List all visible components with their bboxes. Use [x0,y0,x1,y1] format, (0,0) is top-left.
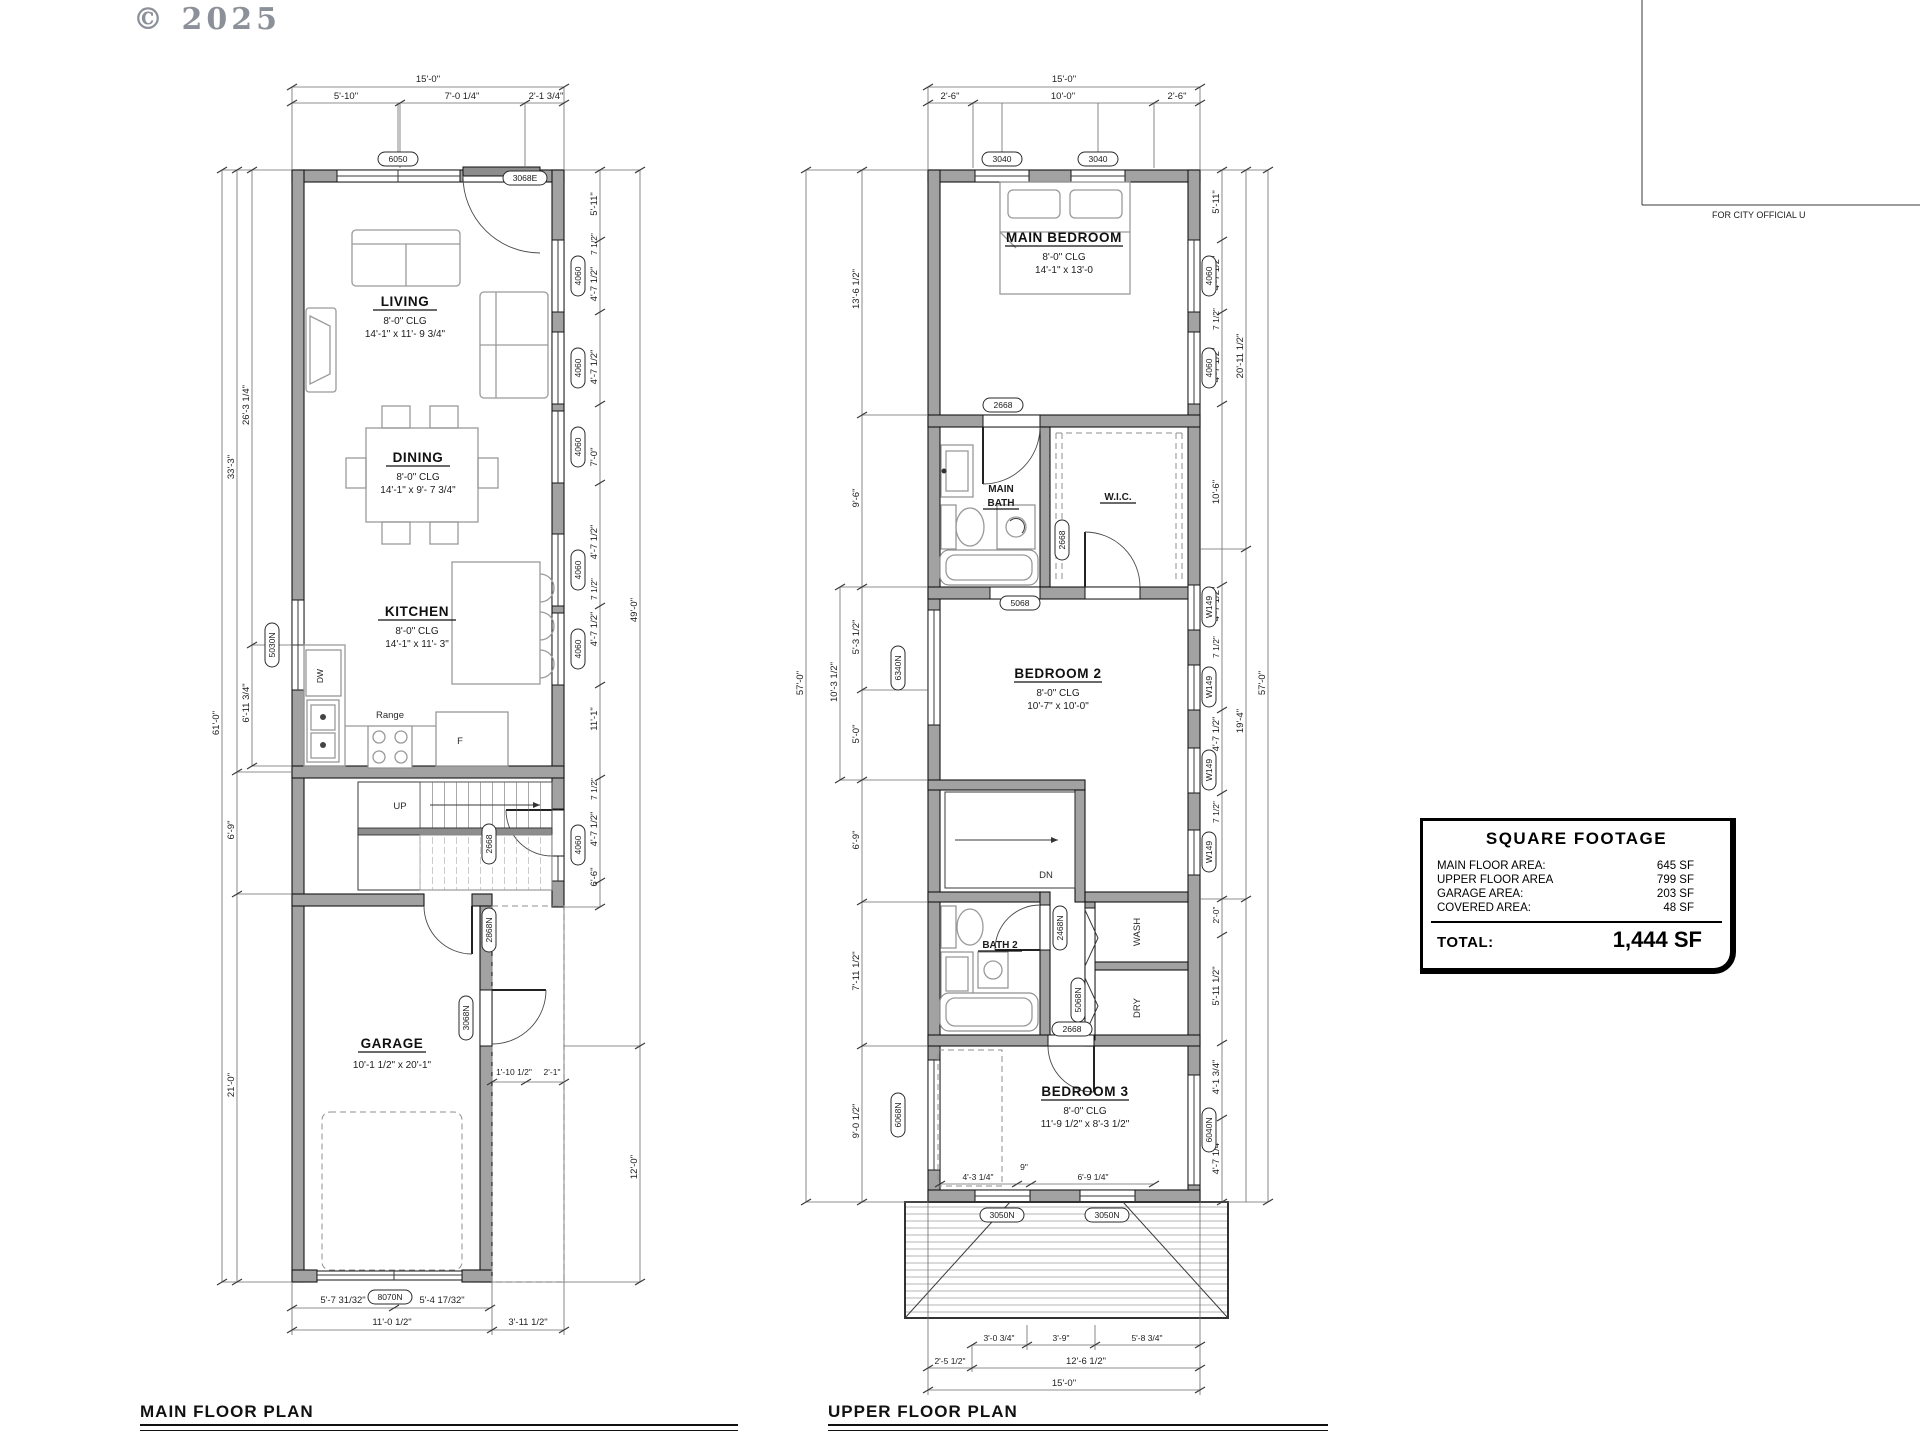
tag-6040N: 6040N [1202,1108,1216,1152]
sqft-label: UPPER FLOOR AREA [1437,873,1553,887]
covered-porch [492,906,564,1282]
svg-text:11'-0 1/2": 11'-0 1/2" [372,1317,411,1328]
dining-label: DINING 8'-0" CLG 14'-1" x 9'- 7 3/4" [380,450,456,496]
svg-text:4'-7 1/2": 4'-7 1/2" [589,350,600,385]
svg-text:9": 9" [1020,1162,1028,1172]
car-outline [322,1112,462,1270]
svg-text:5'-7 31/32": 5'-7 31/32" [320,1295,365,1306]
garage-entry-door [424,906,472,954]
garage-overhead-door [317,1271,462,1280]
svg-text:13'-6 1/2": 13'-6 1/2" [851,269,862,309]
sqft-total-row: TOTAL: 1,444 SF [1431,921,1722,953]
tag-3050N-2: 3050N [1085,1208,1129,1222]
svg-text:5'-11": 5'-11" [589,192,600,216]
svg-text:W149: W149 [1204,676,1214,698]
sqft-label: MAIN FLOOR AREA: [1437,859,1546,873]
tag-5068: 5068 [1000,596,1040,610]
svg-text:5030N: 5030N [267,632,277,657]
plan-drawing: FOR CITY OFFICIAL U [0,0,1920,1440]
svg-text:8'-0" CLG: 8'-0" CLG [395,626,438,637]
svg-text:12'-0": 12'-0" [629,1155,640,1179]
svg-text:6340N: 6340N [893,655,903,680]
tag-4060-3: 4060 [571,427,585,467]
svg-text:2868N: 2868N [484,917,494,942]
svg-text:BEDROOM 3: BEDROOM 3 [1041,1084,1128,1099]
svg-text:3'-11 1/2": 3'-11 1/2" [508,1317,547,1328]
svg-text:11'-9 1/2" x 8'-3 1/2": 11'-9 1/2" x 8'-3 1/2" [1041,1119,1130,1130]
svg-text:W149: W149 [1204,596,1214,618]
floor-plan-sheet: © 2025 FOR CITY OFFICIAL U [0,0,1920,1440]
tag-3050N-1: 3050N [980,1208,1024,1222]
kitchen-fixtures [304,562,554,768]
svg-text:7'-0 1/4": 7'-0 1/4" [445,91,480,102]
svg-text:7 1/2": 7 1/2" [1211,636,1221,658]
svg-text:DINING: DINING [393,450,444,465]
sqft-row-upper: UPPER FLOOR AREA 799 SF [1437,873,1716,887]
svg-text:2'-6": 2'-6" [941,91,960,102]
svg-text:4060: 4060 [573,266,583,285]
stairs-up [358,782,552,890]
svg-text:8'-0" CLG: 8'-0" CLG [1036,688,1079,699]
svg-text:2'-1 3/4": 2'-1 3/4" [529,91,564,102]
svg-text:2'-5 1/2": 2'-5 1/2" [934,1356,965,1366]
wic-label: W.I.C. [1100,492,1136,503]
svg-text:5'-11 1/2": 5'-11 1/2" [1211,966,1222,1005]
svg-text:MAIN: MAIN [988,484,1014,495]
svg-text:6'-6": 6'-6" [589,868,600,887]
corner-note: FOR CITY OFFICIAL U [1712,210,1806,220]
upper-dims-top: 15'-0" 2'-6" 10'-0" 2'-6" [923,74,1205,170]
main-bath-fixtures [940,445,1038,585]
svg-text:4'-3 1/4": 4'-3 1/4" [962,1172,993,1182]
bath2-fixtures [940,906,1038,1031]
tag-4060-1: 4060 [571,256,585,296]
svg-text:4060: 4060 [1204,358,1214,377]
tag-6050: 6050 [378,152,418,166]
sqft-value: 645 SF [1657,859,1716,873]
svg-text:10'-3 1/2": 10'-3 1/2" [829,662,840,702]
svg-text:5'-10": 5'-10" [334,91,358,102]
dry-label: DRY [1132,997,1143,1018]
living-furniture [306,230,548,398]
svg-text:14'-1" x 13'-0: 14'-1" x 13'-0 [1035,265,1093,276]
tag-2868N: 2868N [482,908,496,952]
svg-text:3040: 3040 [993,154,1012,164]
svg-text:4060: 4060 [573,437,583,456]
svg-text:4060: 4060 [573,639,583,658]
tag-3040-1: 3040 [982,152,1022,166]
svg-text:14'-1" x 9'- 7 3/4": 14'-1" x 9'- 7 3/4" [380,485,456,496]
tag-6068N: 6068N [891,1093,905,1137]
stairs-down [945,792,1075,888]
upper-plan-title: UPPER FLOOR PLAN [828,1402,1018,1422]
window-6050 [337,170,460,182]
svg-text:3'-0 3/4": 3'-0 3/4" [983,1333,1014,1343]
svg-text:10'-0": 10'-0" [1051,91,1075,102]
dw-label: DW [315,669,325,683]
deck [905,1202,1228,1318]
svg-text:57'-0": 57'-0" [1257,671,1268,695]
wic-door [1085,532,1140,599]
title-block-corner: FOR CITY OFFICIAL U [1642,0,1920,220]
main-title-rule [140,1424,738,1426]
tag-4060-6: 4060 [571,825,585,865]
svg-text:19'-4": 19'-4" [1235,709,1246,733]
svg-text:6'-9": 6'-9" [851,831,862,850]
svg-text:5'-3 1/2": 5'-3 1/2" [851,620,862,655]
svg-text:W149: W149 [1204,841,1214,863]
main-floor-plan: DW Range F UP LIVING 8'-0" CLG 14'-1" x … [211,74,645,1335]
upper-title-rule [828,1424,1328,1426]
svg-text:7 1/2": 7 1/2" [589,233,599,255]
svg-text:4'-7 1/2": 4'-7 1/2" [589,612,600,647]
svg-text:8070N: 8070N [377,1292,402,1302]
svg-text:7 1/2": 7 1/2" [589,778,599,800]
svg-text:4060: 4060 [1204,266,1214,285]
svg-text:9'-0 1/2": 9'-0 1/2" [851,1104,862,1139]
svg-text:8'-0" CLG: 8'-0" CLG [1042,252,1085,263]
wash-label: WASH [1132,918,1143,946]
window-6340N [928,610,940,725]
window-5030N [292,600,304,690]
svg-text:5'-11": 5'-11" [1211,190,1222,214]
tag-2668: 2668 [482,824,496,864]
tag-4060-5: 4060 [571,629,585,669]
sqft-row-covered: COVERED AREA: 48 SF [1437,901,1716,915]
svg-text:3050N: 3050N [989,1210,1014,1220]
svg-text:BATH 2: BATH 2 [982,940,1018,951]
svg-text:61'-0": 61'-0" [211,711,222,735]
svg-text:5068N: 5068N [1073,987,1083,1012]
bed3-closet [938,1050,1002,1186]
main-title-rule2 [140,1430,738,1431]
svg-text:3068E: 3068E [513,173,538,183]
tag-6340N: 6340N [891,646,905,690]
svg-text:2'-6": 2'-6" [1168,91,1187,102]
tag-W149-4: W149 [1202,832,1216,872]
svg-text:LIVING: LIVING [381,294,430,309]
svg-text:W149: W149 [1204,759,1214,781]
upper-dims-left: 13'-6 1/2" 9'-6" 5'-3 1/2" 5'-0" 10'-3 1… [795,167,928,1205]
main-dims-top: 15'-0" 5'-10" 7'-0 1/4" 2'-1 3/4" [287,74,569,170]
up-label: UP [393,801,406,812]
svg-text:4'-7 1/2": 4'-7 1/2" [589,525,600,560]
svg-text:15'-0": 15'-0" [1052,74,1076,85]
tag-4060-2: 4060 [571,348,585,388]
svg-text:57'-0": 57'-0" [795,671,806,695]
tag-wic-2668: 2668 [1055,520,1069,560]
svg-text:15'-0": 15'-0" [1052,1378,1076,1389]
svg-text:2668: 2668 [1057,530,1067,549]
living-label: LIVING 8'-0" CLG 14'-1" x 11'- 9 3/4" [365,294,446,340]
svg-text:6'-9": 6'-9" [226,821,237,840]
svg-text:4060: 4060 [573,358,583,377]
svg-text:4060: 4060 [573,560,583,579]
svg-text:KITCHEN: KITCHEN [385,604,449,619]
sqft-total-label: TOTAL: [1437,934,1494,951]
main-bath-label: MAIN BATH [983,484,1019,509]
svg-text:3050N: 3050N [1094,1210,1119,1220]
svg-text:BATH: BATH [987,498,1014,509]
tag-4060-4: 4060 [571,550,585,590]
fridge-label: F [457,736,463,747]
tag-3068N: 3068N [459,996,473,1040]
tag-3068E: 3068E [503,171,547,185]
svg-text:8'-0" CLG: 8'-0" CLG [383,316,426,327]
svg-text:3068N: 3068N [461,1005,471,1030]
svg-text:MAIN BEDROOM: MAIN BEDROOM [1006,230,1122,245]
svg-text:4060: 4060 [573,835,583,854]
svg-text:10'-6": 10'-6" [1211,480,1222,504]
bedroom2-label: BEDROOM 2 8'-0" CLG 10'-7" x 10'-0" [1014,666,1102,712]
svg-text:9'-6": 9'-6" [851,489,862,508]
main-plan-title: MAIN FLOOR PLAN [140,1402,314,1422]
svg-text:7 1/2": 7 1/2" [1211,308,1221,330]
sqft-row-garage: GARAGE AREA: 203 SF [1437,887,1716,901]
svg-text:1'-10 1/2": 1'-10 1/2" [496,1067,532,1077]
svg-text:7 1/2": 7 1/2" [1211,801,1221,823]
svg-text:7'-0": 7'-0" [589,448,600,467]
bedroom3-label: BEDROOM 3 8'-0" CLG 11'-9 1/2" x 8'-3 1/… [1041,1084,1130,1130]
tag-8070N: 8070N [368,1290,412,1304]
bath2-label: BATH 2 [978,940,1022,951]
svg-text:BEDROOM 2: BEDROOM 2 [1014,666,1101,681]
svg-text:8'-0" CLG: 8'-0" CLG [396,472,439,483]
upper-floor-plan: DN WASH DRY [795,74,1273,1395]
svg-text:6040N: 6040N [1204,1117,1214,1142]
sqft-value: 203 SF [1657,887,1716,901]
main-bath-door [983,415,1040,484]
svg-text:6050: 6050 [389,154,408,164]
svg-text:2'-1": 2'-1" [544,1067,561,1077]
svg-text:4'-7 1/2": 4'-7 1/2" [589,812,600,847]
tag-2468N: 2468N [1053,906,1067,950]
svg-text:4'-7 1/2": 4'-7 1/2" [589,267,600,302]
svg-text:21'-0": 21'-0" [226,1073,237,1097]
svg-text:6'-11 3/4": 6'-11 3/4" [241,683,252,722]
square-footage-title: SQUARE FOOTAGE [1423,829,1730,849]
svg-text:49'-0": 49'-0" [629,598,640,622]
garage-side-door [480,990,546,1046]
svg-text:2668: 2668 [484,834,494,853]
square-footage-table: SQUARE FOOTAGE MAIN FLOOR AREA: 645 SF U… [1420,818,1736,974]
tag-W149-2: W149 [1202,667,1216,707]
sqft-row-main: MAIN FLOOR AREA: 645 SF [1437,859,1716,873]
svg-text:2668: 2668 [1063,1024,1082,1034]
tag-3040-2: 3040 [1078,152,1118,166]
svg-text:6'-9 1/4": 6'-9 1/4" [1077,1172,1108,1182]
svg-text:26'-3 1/4": 26'-3 1/4" [241,385,252,425]
svg-text:5068: 5068 [1011,598,1030,608]
tag-bed3-2668: 2668 [1052,1022,1092,1036]
svg-text:14'-1" x 11'- 9 3/4": 14'-1" x 11'- 9 3/4" [365,329,446,340]
svg-text:8'-0" CLG: 8'-0" CLG [1063,1106,1106,1117]
garage-label: GARAGE 10'-1 1/2" x 20'-1" [353,1036,432,1071]
tag-5068N: 5068N [1071,978,1085,1022]
upper-title-rule2 [828,1430,1328,1431]
wic-shelves [1056,433,1182,581]
main-bedroom-label: MAIN BEDROOM 8'-0" CLG 14'-1" x 13'-0 [1005,230,1123,276]
kitchen-label: KITCHEN 8'-0" CLG 14'-1" x 11'- 3" [378,604,456,650]
svg-text:33'-3": 33'-3" [226,455,237,479]
sqft-label: COVERED AREA: [1437,901,1531,915]
sqft-total-value: 1,444 SF [1613,927,1716,953]
svg-text:6068N: 6068N [893,1102,903,1127]
svg-text:2'-0": 2'-0" [1211,907,1221,924]
dn-label: DN [1039,870,1053,881]
svg-text:15'-0": 15'-0" [416,74,440,85]
svg-text:W.I.C.: W.I.C. [1104,492,1131,503]
laundry-bifold [1085,908,1098,1040]
tag-4060-r2: 4060 [1202,348,1216,388]
svg-text:2468N: 2468N [1055,915,1065,940]
svg-text:5'-0": 5'-0" [851,725,862,744]
svg-text:10'-1 1/2" x 20'-1": 10'-1 1/2" x 20'-1" [353,1060,432,1071]
svg-text:GARAGE: GARAGE [361,1036,424,1051]
svg-text:12'-6 1/2": 12'-6 1/2" [1066,1356,1106,1367]
svg-text:11'-1": 11'-1" [589,707,600,731]
svg-text:3040: 3040 [1089,154,1108,164]
svg-text:7 1/2": 7 1/2" [589,578,599,600]
svg-text:3'-9": 3'-9" [1053,1333,1070,1343]
svg-text:2668: 2668 [994,400,1013,410]
svg-text:10'-7" x 10'-0": 10'-7" x 10'-0" [1027,701,1089,712]
sqft-label: GARAGE AREA: [1437,887,1523,901]
svg-text:5'-8 3/4": 5'-8 3/4" [1131,1333,1162,1343]
tag-4060-r1: 4060 [1202,256,1216,296]
sqft-value: 799 SF [1657,873,1716,887]
tag-5030N: 5030N [265,623,279,667]
tag-bath-2668: 2668 [983,398,1023,412]
svg-text:20'-11 1/2": 20'-11 1/2" [1235,334,1246,379]
svg-text:14'-1" x 11'- 3": 14'-1" x 11'- 3" [385,639,449,650]
svg-text:5'-4 17/32": 5'-4 17/32" [419,1295,464,1306]
svg-text:4'-1 3/4": 4'-1 3/4" [1211,1060,1222,1095]
main-dims-right: 5'-11" 7 1/2" 4'-7 1/2" 4'-7 1/2" 7'-0" … [487,167,645,1285]
tag-W149-3: W149 [1202,750,1216,790]
main-dims-left: 26'-3 1/4" 6'-11 3/4" 33'-3" 6'-9" 21'-0… [211,167,292,1285]
svg-text:4'-7 1/2": 4'-7 1/2" [1211,717,1222,752]
svg-text:7'-11 1/2": 7'-11 1/2" [851,951,862,990]
sqft-value: 48 SF [1663,901,1716,915]
range-label: Range [376,710,404,721]
tag-W149-1: W149 [1202,587,1216,627]
